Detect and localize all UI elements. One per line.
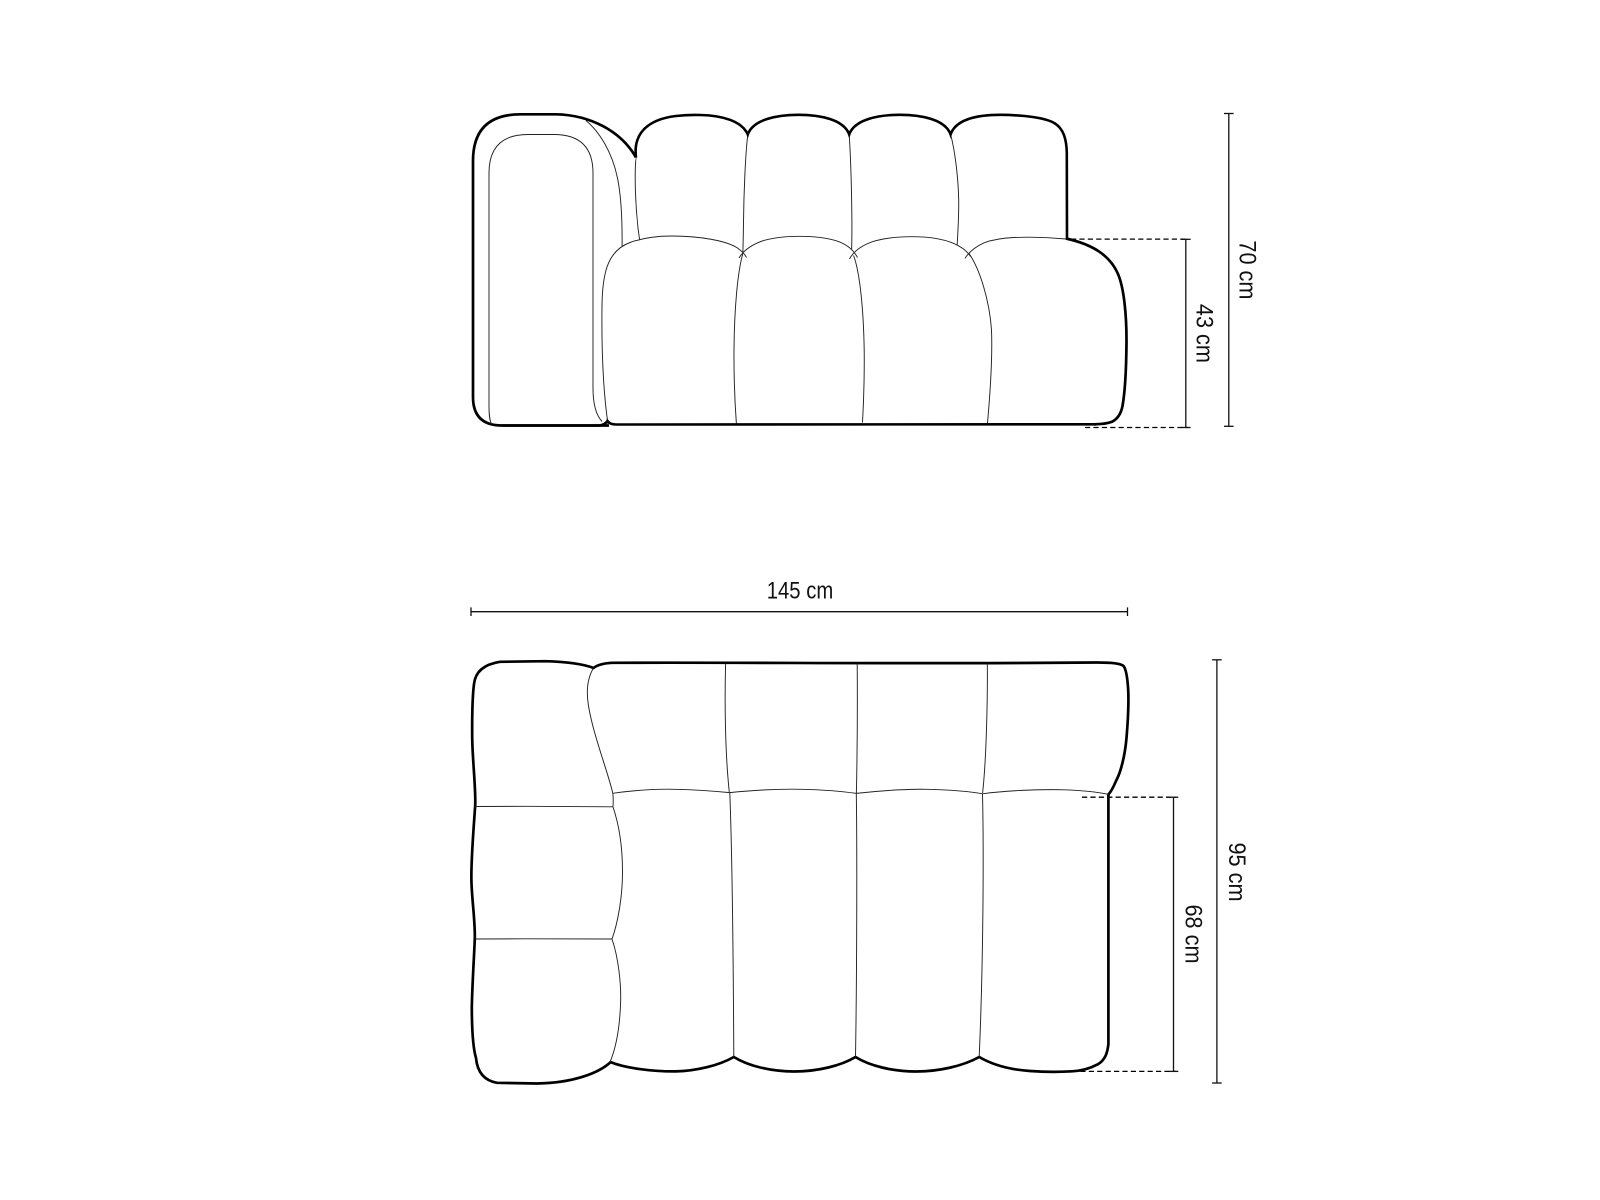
svg-text:43 cm: 43 cm [1191,304,1218,363]
svg-text:145 cm: 145 cm [767,578,834,605]
svg-text:95 cm: 95 cm [1223,843,1250,902]
svg-text:68 cm: 68 cm [1180,905,1207,964]
svg-text:70 cm: 70 cm [1234,240,1261,299]
